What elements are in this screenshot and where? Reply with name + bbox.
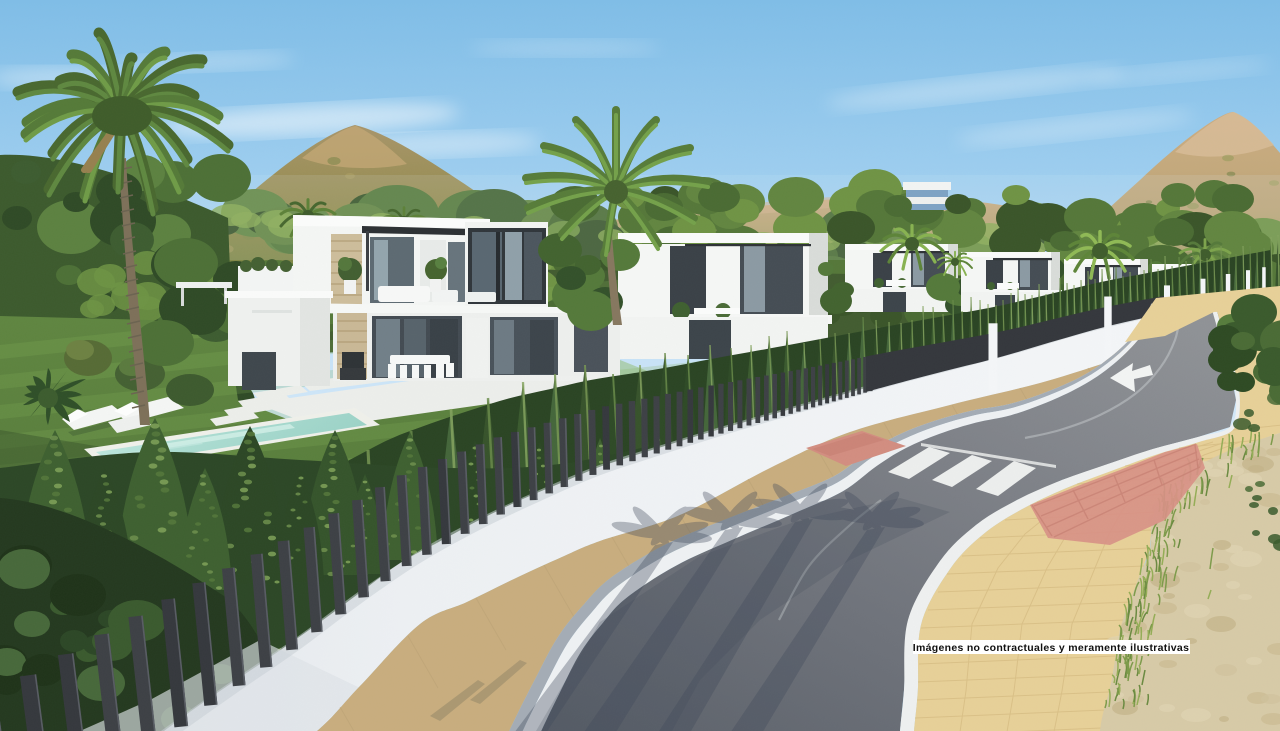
- svg-text:Imágenes no contractuales y me: Imágenes no contractuales y meramente il…: [913, 642, 1189, 654]
